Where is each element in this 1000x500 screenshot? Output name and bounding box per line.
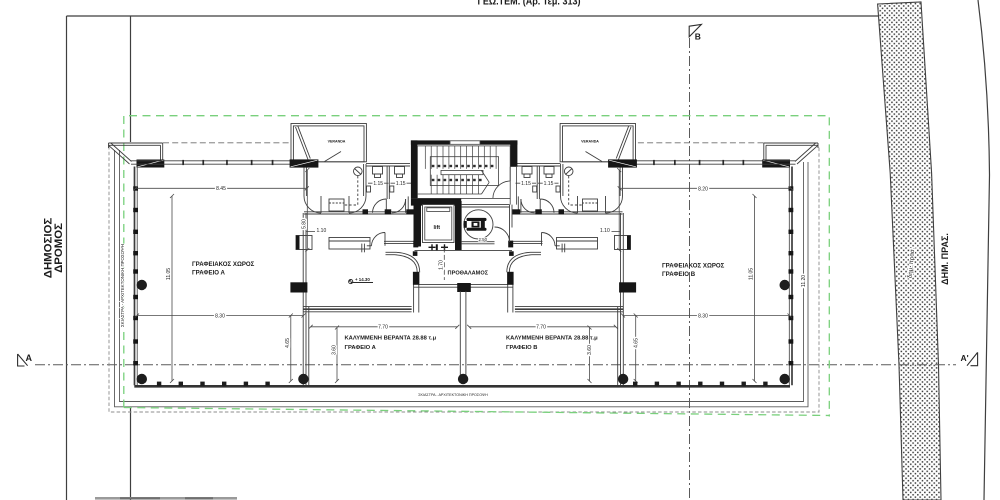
svg-text:ΓΡΑΦΕΙΟ Α: ΓΡΑΦΕΙΟ Α — [345, 345, 377, 351]
svg-text:11.05: 11.05 — [166, 268, 172, 280]
svg-text:ΓΕΩ.ΤΕΜ. (Αρ. Τεμ. 313): ΓΕΩ.ΤΕΜ. (Αρ. Τεμ. 313) — [478, 0, 581, 8]
svg-text:1.15: 1.15 — [521, 181, 531, 187]
svg-text:4.65: 4.65 — [285, 338, 291, 348]
svg-text:ΚΑΛΥΜΜΕΝΗ ΒΕΡΑΝΤΑ 28.88 τ.μ: ΚΑΛΥΜΜΕΝΗ ΒΕΡΑΝΤΑ 28.88 τ.μ — [345, 335, 437, 341]
svg-text:ΓΡΑΦΕΙΟ Α: ΓΡΑΦΕΙΟ Α — [192, 270, 225, 277]
svg-text:8.30: 8.30 — [698, 313, 708, 319]
svg-text:1.10: 1.10 — [317, 228, 327, 234]
svg-text:1.15: 1.15 — [396, 181, 406, 187]
svg-text:VERANDA: VERANDA — [328, 140, 346, 144]
svg-text:3.60: 3.60 — [587, 345, 593, 355]
svg-text:VERANDA: VERANDA — [581, 140, 599, 144]
svg-text:3.60: 3.60 — [331, 345, 337, 355]
svg-text:8.45: 8.45 — [216, 186, 226, 192]
svg-text:2.50: 2.50 — [479, 237, 488, 242]
svg-text:ΚΑΛΥΜΜΕΝΗ ΒΕΡΑΝΤΑ 28.88 τ.μ: ΚΑΛΥΜΜΕΝΗ ΒΕΡΑΝΤΑ 28.88 τ.μ — [506, 335, 598, 341]
svg-text:ΔΡΟΜΟΣ: ΔΡΟΜΟΣ — [53, 223, 65, 273]
svg-text:ΠΡΟΘΑΛΑΜΟΣ: ΠΡΟΘΑΛΑΜΟΣ — [448, 271, 489, 277]
svg-text:ΔΗΜ. ΠΡΑΣ.: ΔΗΜ. ΠΡΑΣ. — [940, 233, 950, 285]
svg-text:11.05: 11.05 — [749, 268, 755, 280]
svg-text:4.65: 4.65 — [634, 338, 640, 348]
svg-text:ΓΡΑΦΕΙΑΚΟΣ ΧΩΡΟΣ: ΓΡΑΦΕΙΑΚΟΣ ΧΩΡΟΣ — [662, 262, 725, 269]
svg-text:8.30: 8.30 — [215, 313, 225, 319]
svg-text:ΓΡΑΦΕΙΑΚΟΣ ΧΩΡΟΣ: ΓΡΑΦΕΙΑΚΟΣ ΧΩΡΟΣ — [192, 261, 255, 268]
svg-text:lift: lift — [434, 225, 441, 231]
svg-text:5.80: 5.80 — [302, 219, 308, 229]
svg-text:ΓΡΑΦΕΙΟ Β: ΓΡΑΦΕΙΟ Β — [662, 271, 696, 278]
svg-text:1.15: 1.15 — [544, 181, 554, 187]
svg-text:A: A — [26, 353, 33, 363]
svg-text:1.70: 1.70 — [439, 260, 445, 270]
svg-text:A': A' — [961, 353, 969, 363]
svg-text:+ 14.30: + 14.30 — [355, 277, 370, 282]
svg-text:7.70: 7.70 — [536, 325, 546, 331]
svg-text:B: B — [695, 32, 701, 42]
svg-text:ΓΡΑΦΕΙΟ Β: ΓΡΑΦΕΙΟ Β — [506, 345, 538, 351]
svg-text:11.20: 11.20 — [801, 275, 807, 287]
svg-text:ΣΚΙΑΣΤΡΑ - ΑΡΧΙΤΕΚΤΟΝΙΚΗ ΠΡΟΣΟ: ΣΚΙΑΣΤΡΑ - ΑΡΧΙΤΕΚΤΟΝΙΚΗ ΠΡΟΣΟΨΗ — [120, 244, 125, 327]
svg-text:7.70: 7.70 — [378, 325, 388, 331]
svg-text:1.10: 1.10 — [600, 228, 610, 234]
svg-text:1.15: 1.15 — [373, 181, 383, 187]
svg-text:8.20: 8.20 — [698, 187, 708, 193]
svg-text:ΣΚΙΑΣΤΡΑ - ΑΡΧΙΤΕΚΤΟΝΙΚΗ ΠΡΟΣΟ: ΣΚΙΑΣΤΡΑ - ΑΡΧΙΤΕΚΤΟΝΙΚΗ ΠΡΟΣΟΨΗ — [418, 393, 488, 397]
